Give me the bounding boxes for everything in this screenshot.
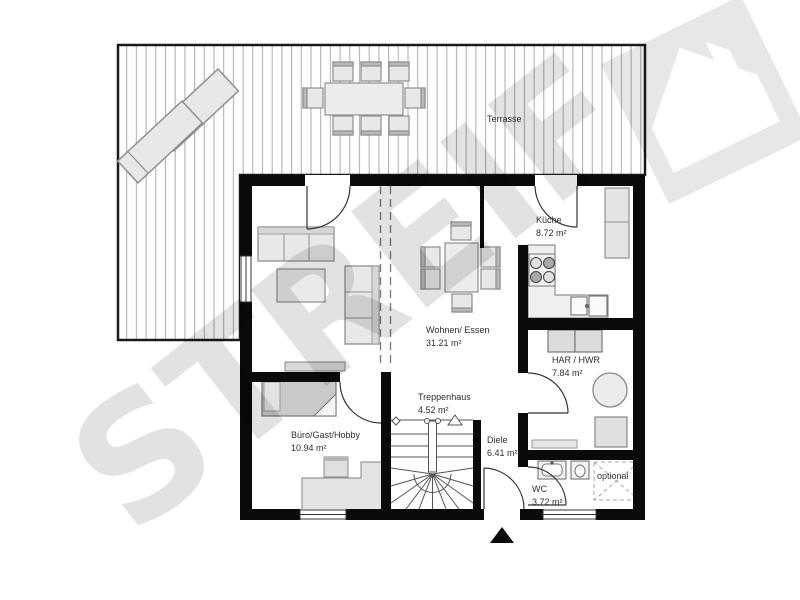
har-shelf: [532, 440, 577, 448]
cooktop-icon: [529, 254, 555, 286]
entrance-marker-icon: [490, 527, 514, 543]
boiler-icon: [593, 373, 627, 407]
floorplan-drawing: [0, 0, 800, 600]
coffee-table: [277, 269, 325, 302]
window-wc-south: [543, 509, 596, 520]
window-living-west: [240, 256, 252, 302]
toilet-icon: [571, 461, 589, 479]
wall-shelf: [285, 362, 345, 371]
washer-dryer: [548, 330, 602, 352]
window-office-south: [300, 509, 346, 520]
guest-bed: [262, 378, 336, 416]
kitchen-sink-icon: [571, 296, 607, 316]
hvac-unit: [595, 417, 627, 447]
floorplan-page: STREIF Terrasse Küche 8.72 m² Wohnen/ Es…: [0, 0, 800, 600]
sofa-three-seat: [258, 227, 334, 261]
sofa-two-seat: [345, 266, 379, 344]
